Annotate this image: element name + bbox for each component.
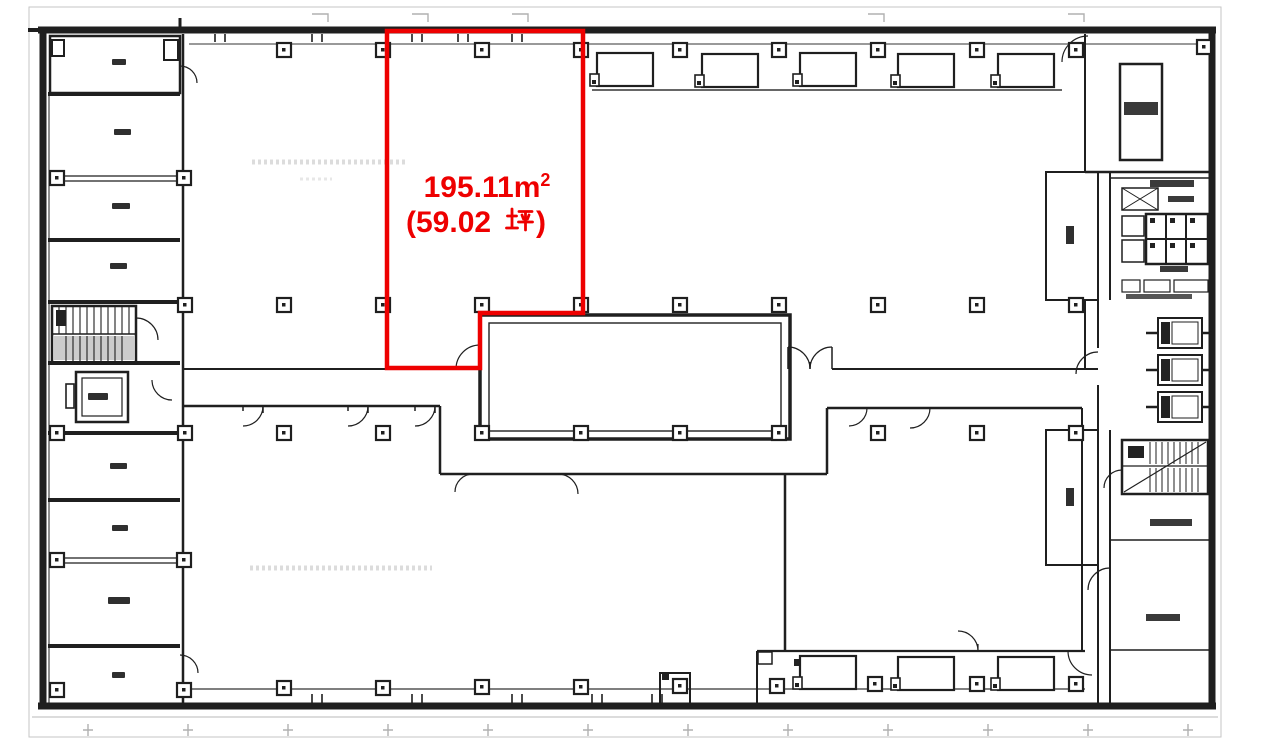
floor-plan-svg: 195.11m2 (59.02 ): [0, 0, 1280, 742]
toilet-block: [1110, 178, 1209, 299]
exterior-walls: [28, 18, 1216, 707]
grid-ticks: [83, 14, 1193, 736]
machine-room: [1120, 64, 1162, 160]
highlight-area-label-tsubo-open: (59.02: [406, 206, 491, 239]
stairwell-east: [1104, 440, 1208, 494]
stairwell-west: [52, 306, 158, 363]
bottom-window-boxes: [793, 656, 1054, 690]
elevator-bank-east: [1146, 318, 1212, 422]
corridor-walls: [183, 34, 1098, 650]
beam-lines: [189, 44, 1206, 689]
central-core: [480, 315, 790, 439]
elevator-west: [66, 372, 172, 422]
room-label-smudges-west: [108, 59, 131, 678]
highlight-area-label-tsubo-close: ): [536, 206, 546, 239]
floor-plan-image: 195.11m2 (59.02 ): [0, 0, 1280, 742]
faint-label-smudge: [250, 162, 432, 568]
survey-frame: [29, 7, 1221, 737]
highlight-area: 195.11m2 (59.02 ): [387, 31, 583, 368]
left-service-strip: [48, 34, 198, 703]
tsubo-kanji-glyph: [507, 209, 533, 230]
highlight-area-label-m2: 195.11m2: [424, 170, 551, 204]
